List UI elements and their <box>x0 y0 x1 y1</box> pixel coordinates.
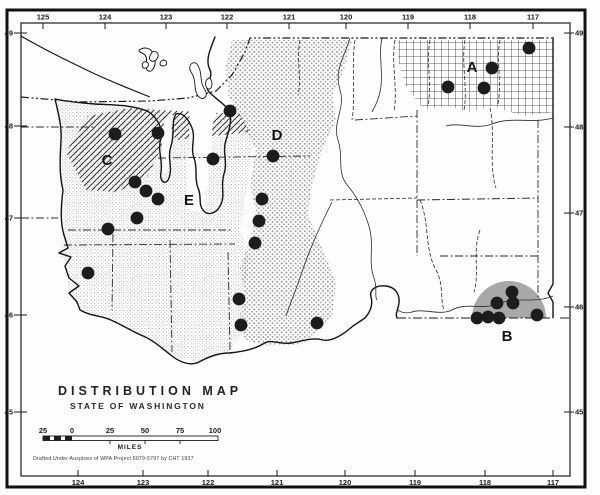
whidbey-island <box>190 63 207 99</box>
distribution-dot <box>233 293 246 306</box>
region-label-e: E <box>184 192 194 209</box>
distribution-dot <box>256 193 269 206</box>
distribution-dot <box>152 127 165 140</box>
map-body: ABCDE <box>21 36 570 364</box>
latitude-label: 48 <box>5 122 13 131</box>
longitude-label: 118 <box>479 478 491 487</box>
distribution-dot <box>131 212 144 225</box>
distribution-dot <box>253 215 266 228</box>
scale-bar: 250255075100 MILES <box>39 426 221 451</box>
top-longitude-axis: 125124123122121120119118117 <box>37 13 539 30</box>
latitude-label: 45 <box>5 408 13 417</box>
scanned-distribution-map: ABCDE 125124123122121120119118117 124123… <box>0 0 600 495</box>
longitude-label: 123 <box>137 478 150 487</box>
distribution-map-figure: ABCDE 125124123122121120119118117 124123… <box>0 0 600 495</box>
distribution-dot <box>486 62 499 75</box>
distribution-dot <box>267 150 280 163</box>
distribution-dot <box>102 223 115 236</box>
distribution-dot <box>493 312 506 325</box>
latitude-label: 49 <box>5 29 13 38</box>
right-latitude-axis: 4948474645 <box>564 29 583 417</box>
scale-label: 50 <box>141 426 149 435</box>
longitude-label: 122 <box>221 13 234 22</box>
map-title: DISTRIBUTION MAP <box>58 384 242 398</box>
latitude-label: 49 <box>575 29 583 38</box>
scale-label: 100 <box>209 426 222 435</box>
longitude-label: 120 <box>339 478 352 487</box>
distribution-dot <box>140 185 153 198</box>
distribution-dot <box>152 193 165 206</box>
latitude-label: 46 <box>575 303 583 312</box>
okanogan-river <box>372 38 382 112</box>
bottom-longitude-axis: 124123122121120119118117 <box>72 470 559 487</box>
distribution-dot <box>507 297 520 310</box>
orcas-island <box>160 60 167 66</box>
longitude-label: 118 <box>464 13 476 22</box>
distribution-dot <box>523 42 536 55</box>
lopez-island <box>142 62 148 68</box>
distribution-dot <box>482 311 495 324</box>
longitude-label: 119 <box>409 478 421 487</box>
scale-label: 25 <box>39 426 47 435</box>
map-subtitle: STATE OF WASHINGTON <box>70 401 206 411</box>
vancouver-island-coast <box>21 36 150 97</box>
credit-line: Drafted Under Auspices of WPA Project 60… <box>33 456 194 462</box>
distribution-dot <box>109 128 122 141</box>
region-label-b: B <box>502 328 513 345</box>
scale-label: 0 <box>70 426 74 435</box>
distribution-dot <box>506 286 519 299</box>
longitude-label: 120 <box>340 13 353 22</box>
distribution-dot <box>442 81 455 94</box>
scale-label: 75 <box>176 426 184 435</box>
latitude-label: 48 <box>575 123 583 132</box>
longitude-label: 117 <box>527 13 539 22</box>
longitude-label: 119 <box>402 13 414 22</box>
distribution-dot <box>207 153 220 166</box>
spokane-river <box>446 118 553 126</box>
distribution-dot <box>129 176 142 189</box>
distribution-dot <box>531 309 544 322</box>
longitude-label: 117 <box>547 478 559 487</box>
longitude-label: 121 <box>271 478 284 487</box>
region-label-c: C <box>102 152 113 169</box>
scale-bar-labels: 250255075100 <box>39 426 221 435</box>
latitude-label: 46 <box>5 311 13 320</box>
longitude-label: 125 <box>37 13 50 22</box>
latitude-label: 47 <box>5 214 13 223</box>
miles-label: MILES <box>118 444 143 451</box>
distribution-dot <box>235 319 248 332</box>
longitude-label: 124 <box>99 13 112 22</box>
distribution-dot <box>82 267 95 280</box>
distribution-dot <box>471 312 484 325</box>
columbia-river <box>336 38 377 300</box>
distribution-dot <box>249 237 262 250</box>
distribution-dot <box>224 105 237 118</box>
longitude-label: 121 <box>283 13 296 22</box>
latitude-label: 45 <box>575 408 583 417</box>
distribution-dot <box>478 82 491 95</box>
longitude-label: 124 <box>72 478 85 487</box>
region-label-d: D <box>272 127 283 144</box>
longitude-label: 122 <box>202 478 215 487</box>
distribution-dot <box>491 297 504 310</box>
longitude-label: 123 <box>160 13 173 22</box>
latitude-label: 47 <box>575 209 583 218</box>
camano-island <box>206 78 212 89</box>
distribution-dot <box>311 317 324 330</box>
scale-label: 25 <box>106 426 114 435</box>
region-label-a: A <box>467 59 478 76</box>
